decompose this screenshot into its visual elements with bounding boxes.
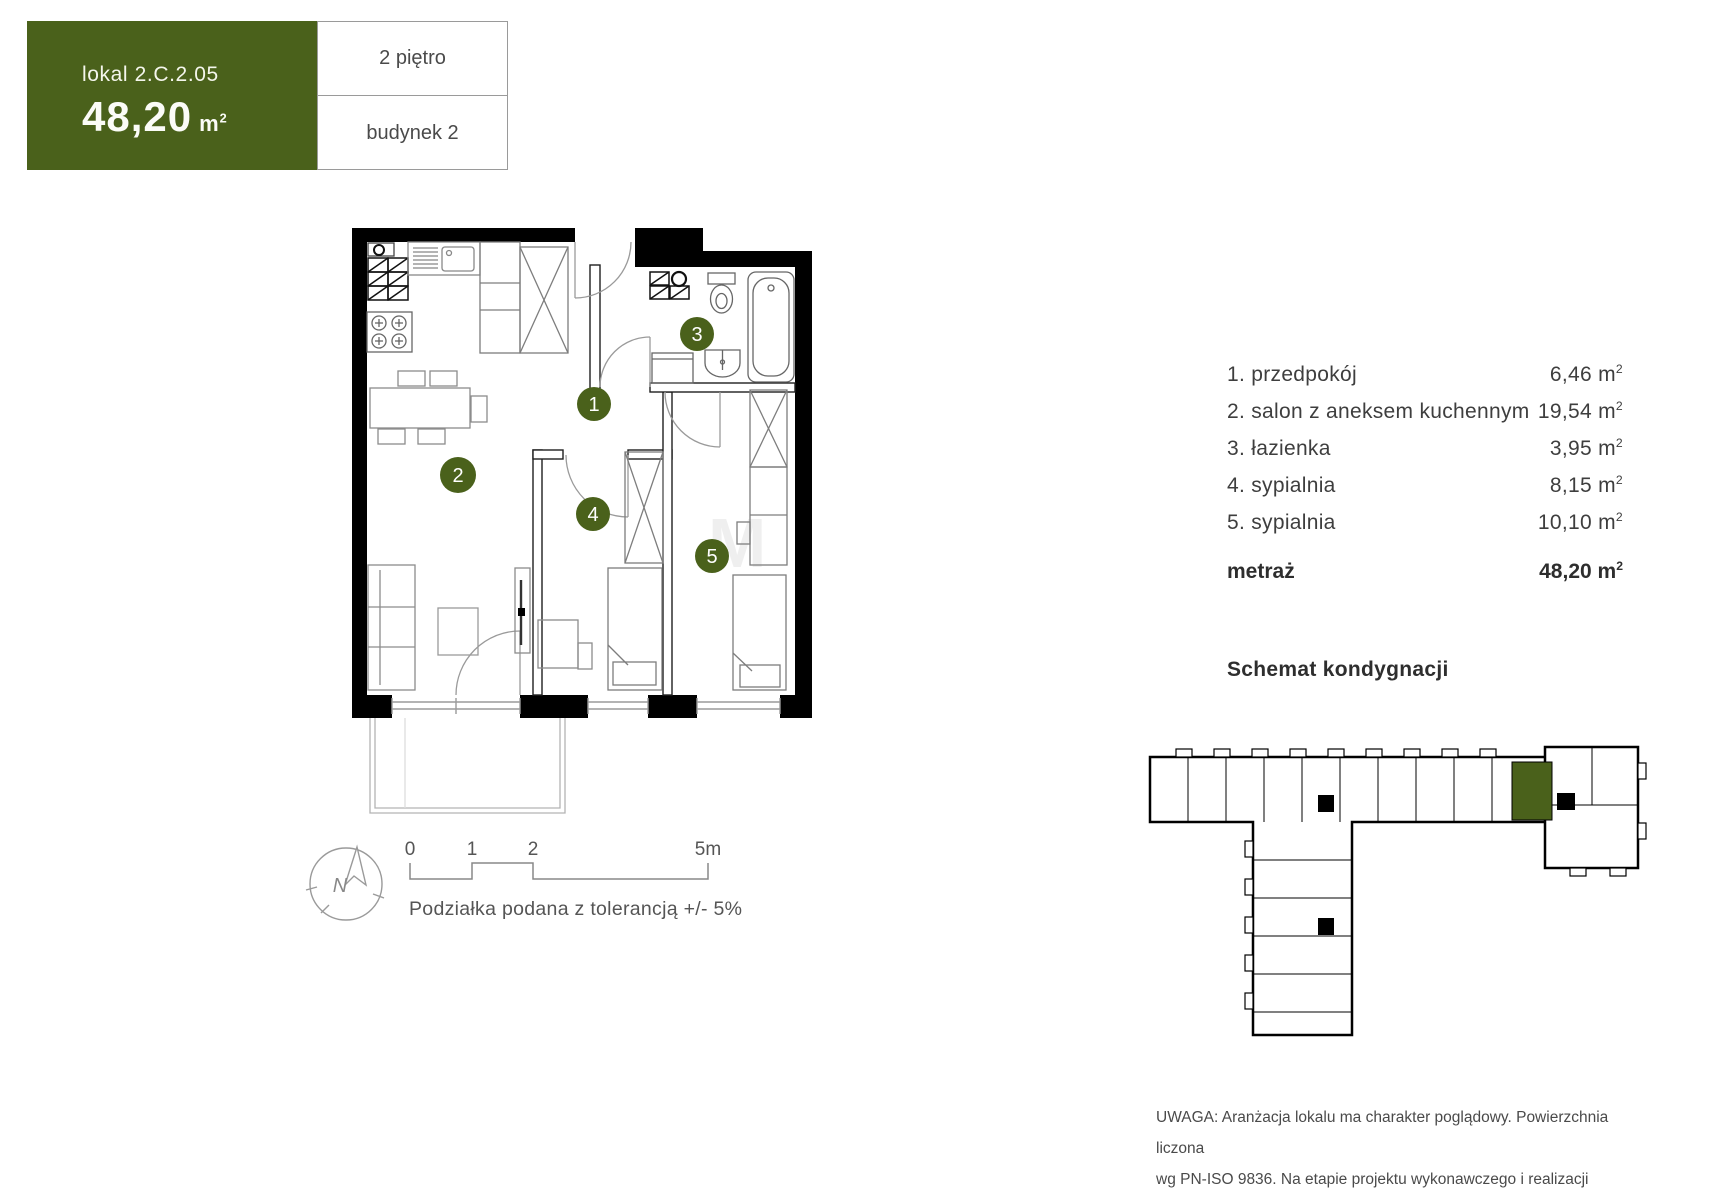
total-area-row: metraż 48,20 m2 (1227, 553, 1623, 590)
room-label: 2. salon z aneksem kuchennym (1227, 400, 1530, 424)
scale-tick-5m: 5m (695, 839, 721, 860)
disclaimer-line: UWAGA: Aranżacja lokalu ma charakter pog… (1156, 1102, 1616, 1164)
room-area: 10,10 m2 (1538, 511, 1623, 535)
legend-row: 4. sypialnia 8,15 m2 (1227, 467, 1623, 504)
balcony (370, 718, 565, 813)
highlighted-unit-marker (1512, 762, 1552, 820)
legend-row: 5. sypialnia 10,10 m2 (1227, 504, 1623, 541)
badge-5: 5 (706, 546, 717, 568)
badge-1: 1 (588, 394, 599, 416)
scale-tick-2: 2 (528, 839, 539, 860)
legend-row: 3. łazienka 3,95 m2 (1227, 430, 1623, 467)
scale-bar: 0 1 2 5m (390, 835, 730, 890)
room-area: 8,15 m2 (1550, 474, 1623, 498)
scale-bar-line (410, 863, 708, 879)
room-legend: 1. przedpokój 6,46 m2 2. salon z aneksem… (1227, 356, 1623, 541)
outer-walls (352, 228, 812, 718)
unit-number-label: lokal 2.C.2.05 (82, 63, 317, 87)
interior-walls (533, 265, 795, 695)
sink-icon (408, 242, 480, 275)
north-compass: N (300, 840, 395, 930)
bathtub-icon (748, 272, 794, 382)
building-schematic (1130, 735, 1670, 1045)
washbasin-icon (705, 350, 740, 377)
total-label: metraż (1227, 560, 1295, 584)
legend-row: 1. przedpokój 6,46 m2 (1227, 356, 1623, 393)
room-area: 19,54 m2 (1538, 400, 1623, 424)
washing-machine-icon (652, 353, 693, 383)
badge-4: 4 (587, 504, 598, 526)
floor-plan-page: lokal 2.C.2.05 48,20m2 2 piętro budynek … (0, 0, 1719, 1200)
living-room-furniture (368, 565, 530, 690)
stove-icon (367, 312, 412, 352)
room-area: 6,46 m2 (1550, 363, 1623, 387)
scale-tick-0: 0 (405, 839, 416, 860)
unit-info-table: 2 piętro budynek 2 (317, 21, 508, 170)
north-label: N (333, 875, 348, 897)
badge-3: 3 (691, 324, 702, 346)
floor-cell: 2 piętro (318, 22, 507, 96)
dining-table (370, 371, 487, 444)
toilet-icon (708, 273, 735, 313)
room-area: 3,95 m2 (1550, 437, 1623, 461)
disclaimer-line: wg PN-ISO 9836. Na etapie projektu wykon… (1156, 1164, 1616, 1200)
unit-card: lokal 2.C.2.05 48,20m2 (27, 21, 317, 170)
kitchen-fixtures (367, 242, 568, 444)
building-outline (1150, 757, 1560, 1035)
building-cell: budynek 2 (318, 96, 507, 170)
apartment-floor-plan: M (300, 195, 860, 835)
room-label: 1. przedpokój (1227, 363, 1357, 387)
scale-labels: 0 1 2 5m (405, 839, 721, 860)
room-badges: 1 2 3 4 5 (440, 317, 729, 573)
shaft-icon (650, 272, 689, 299)
badge-2: 2 (452, 465, 463, 487)
legend-row: 2. salon z aneksem kuchennym 19,54 m2 (1227, 393, 1623, 430)
scale-caption: Podziałka podana z tolerancją +/- 5% (409, 898, 742, 921)
disclaimer-text: UWAGA: Aranżacja lokalu ma charakter pog… (1156, 1102, 1616, 1200)
room-label: 3. łazienka (1227, 437, 1331, 461)
bedroom4-furniture (538, 452, 663, 690)
hall-wardrobe (480, 242, 568, 353)
room-label: 4. sypialnia (1227, 474, 1336, 498)
right-building-block (1545, 747, 1646, 876)
scale-tick-1: 1 (467, 839, 478, 860)
total-area: 48,20 m2 (1539, 560, 1623, 584)
schematic-title: Schemat kondygnacji (1227, 658, 1449, 682)
room-label: 5. sypialnia (1227, 511, 1336, 535)
fridge-icon (368, 258, 408, 300)
bathroom-fixtures (650, 272, 794, 383)
unit-area: 48,20m2 (82, 93, 317, 141)
